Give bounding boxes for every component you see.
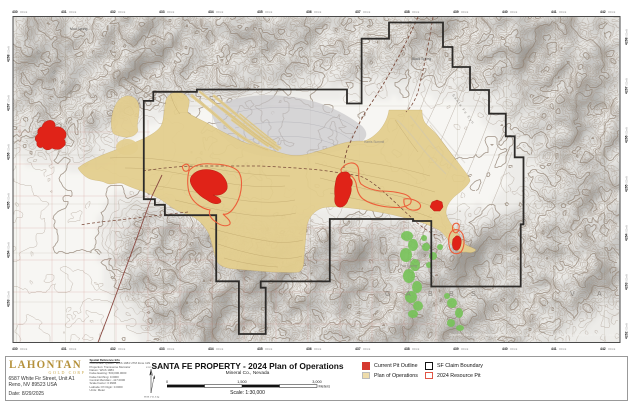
svg-text:S: S xyxy=(471,291,476,298)
svg-text:4267: 4267 xyxy=(7,103,11,111)
svg-text:000mN: 000mN xyxy=(627,274,629,282)
svg-text:000mE: 000mE xyxy=(608,349,616,351)
svg-text:441: 441 xyxy=(551,10,557,14)
svg-text:000mE: 000mE xyxy=(412,349,420,351)
svg-text:000mE: 000mE xyxy=(118,12,126,14)
svg-text:000mE: 000mE xyxy=(461,12,469,14)
svg-text:000mE: 000mE xyxy=(216,349,224,351)
svg-text:440: 440 xyxy=(502,347,508,351)
svg-text:430: 430 xyxy=(12,347,18,351)
svg-text:000mN: 000mN xyxy=(9,291,11,299)
svg-text:000mN: 000mN xyxy=(627,29,629,37)
svg-text:4266: 4266 xyxy=(7,152,11,160)
svg-text:000mE: 000mE xyxy=(363,12,371,14)
svg-text:000mE: 000mE xyxy=(559,12,567,14)
svg-text:000mE: 000mE xyxy=(20,12,28,14)
svg-text:000mE: 000mE xyxy=(510,12,518,14)
svg-text:000mN: 000mN xyxy=(9,242,11,250)
svg-text:431: 431 xyxy=(61,10,67,14)
svg-text:4263: 4263 xyxy=(7,299,11,307)
svg-text:000mE: 000mE xyxy=(510,349,518,351)
svg-text:436: 436 xyxy=(306,10,312,14)
svg-text:4267: 4267 xyxy=(625,86,629,94)
svg-text:000mN: 000mN xyxy=(9,144,11,152)
svg-text:000mE: 000mE xyxy=(608,12,616,14)
svg-text:000mE: 000mE xyxy=(118,349,126,351)
svg-text:438: 438 xyxy=(404,10,410,14)
svg-text:4268: 4268 xyxy=(7,54,11,62)
svg-text:431: 431 xyxy=(61,347,67,351)
svg-text:438: 438 xyxy=(404,347,410,351)
svg-text:4265: 4265 xyxy=(7,201,11,209)
svg-text:433: 433 xyxy=(159,347,165,351)
svg-text:000mE: 000mE xyxy=(314,349,322,351)
svg-text:000mE: 000mE xyxy=(559,349,567,351)
svg-text:441: 441 xyxy=(551,347,557,351)
svg-text:A: A xyxy=(406,291,411,298)
svg-text:435: 435 xyxy=(257,10,263,14)
svg-text:439: 439 xyxy=(453,347,459,351)
svg-text:000mN: 000mN xyxy=(627,323,629,331)
svg-text:A: A xyxy=(597,291,602,298)
svg-text:000mE: 000mE xyxy=(216,12,224,14)
svg-text:432: 432 xyxy=(110,347,116,351)
svg-text:000mE: 000mE xyxy=(167,12,175,14)
svg-text:439: 439 xyxy=(453,10,459,14)
svg-text:434: 434 xyxy=(208,10,214,14)
svg-text:430: 430 xyxy=(12,10,18,14)
svg-text:000mE: 000mE xyxy=(412,12,420,14)
svg-text:4268: 4268 xyxy=(625,37,629,45)
svg-text:432: 432 xyxy=(110,10,116,14)
svg-text:000mE: 000mE xyxy=(461,349,469,351)
svg-text:000mN: 000mN xyxy=(627,176,629,184)
svg-text:435: 435 xyxy=(257,347,263,351)
svg-text:000mE: 000mE xyxy=(265,12,273,14)
svg-text:4264: 4264 xyxy=(7,250,11,258)
svg-text:4263: 4263 xyxy=(625,282,629,290)
svg-text:000mE: 000mE xyxy=(20,349,28,351)
svg-text:4265: 4265 xyxy=(625,184,629,192)
svg-text:Fort Spring: Fort Spring xyxy=(400,264,417,268)
svg-text:4264: 4264 xyxy=(625,233,629,241)
svg-text:000mE: 000mE xyxy=(69,349,77,351)
svg-text:000mN: 000mN xyxy=(9,46,11,54)
svg-text:B: B xyxy=(428,291,433,298)
svg-text:1,500: 1,500 xyxy=(237,380,247,384)
svg-text:000mN: 000mN xyxy=(9,193,11,201)
svg-text:000mN: 000mN xyxy=(627,225,629,233)
svg-text:B: B xyxy=(449,291,454,298)
svg-text:440: 440 xyxy=(502,10,508,14)
svg-text:0: 0 xyxy=(165,380,167,384)
svg-text:000mE: 000mE xyxy=(265,349,273,351)
svg-text:Harris Summit: Harris Summit xyxy=(364,140,384,144)
svg-text:433: 433 xyxy=(159,10,165,14)
svg-text:000mN: 000mN xyxy=(627,127,629,135)
svg-text:000mE: 000mE xyxy=(363,349,371,351)
svg-text:3,000: 3,000 xyxy=(312,380,322,384)
svg-text:437: 437 xyxy=(355,347,361,351)
svg-text:4266: 4266 xyxy=(625,135,629,143)
svg-text:434: 434 xyxy=(208,347,214,351)
svg-text:000mE: 000mE xyxy=(69,12,77,14)
svg-text:Black Spring: Black Spring xyxy=(412,57,431,61)
svg-text:000mN: 000mN xyxy=(9,95,11,103)
svg-text:V: V xyxy=(570,291,575,298)
svg-text:437: 437 xyxy=(355,10,361,14)
svg-text:G: G xyxy=(385,291,390,298)
svg-text:Meters: Meters xyxy=(318,385,330,389)
svg-text:000mE: 000mE xyxy=(167,349,175,351)
svg-text:436: 436 xyxy=(306,347,312,351)
svg-text:000mN: 000mN xyxy=(627,78,629,86)
svg-text:Sources: Esri, HERE, Garmin, I: Sources: Esri, HERE, Garmin, Intermap, G… xyxy=(449,333,618,337)
svg-text:442: 442 xyxy=(600,10,606,14)
svg-text:442: 442 xyxy=(600,347,606,351)
svg-text:000mE: 000mE xyxy=(314,12,322,14)
svg-text:4262: 4262 xyxy=(625,331,629,339)
svg-text:WGS 1°21.5 dg: WGS 1°21.5 dg xyxy=(144,397,160,399)
svg-text:Mud Spring: Mud Spring xyxy=(70,27,87,31)
